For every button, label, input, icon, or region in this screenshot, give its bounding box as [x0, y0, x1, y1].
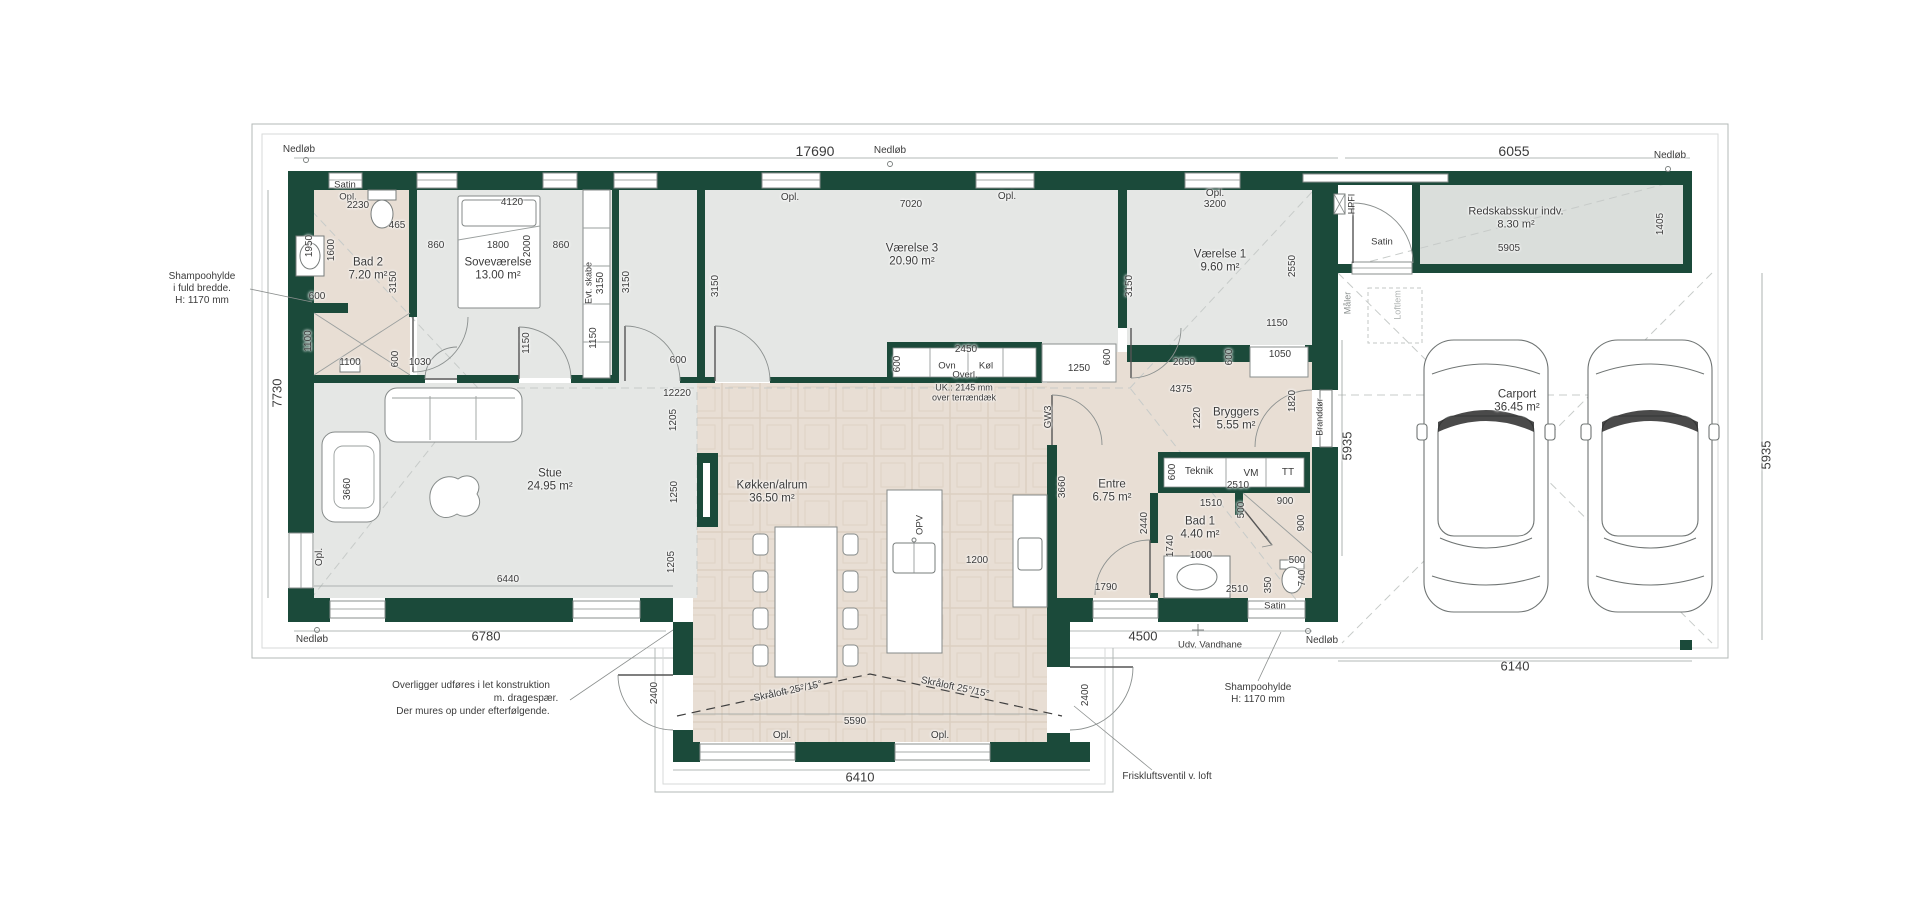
plan-label: 36.50 m²: [749, 493, 794, 505]
floor-plan-page: Nedløb17690Nedløb6055NedløbSatinOpl.2230…: [0, 0, 1920, 920]
plan-label: Udv. Vandhane: [1178, 640, 1242, 650]
plan-label: Nedløb: [1654, 151, 1686, 161]
plan-label: 860: [553, 241, 570, 251]
plan-label: 13.00 m²: [475, 270, 520, 282]
plan-label: UK.: 2145 mm: [935, 384, 993, 393]
plan-label: 3150: [389, 271, 399, 293]
plan-label: 600: [670, 356, 687, 366]
plan-label: 1220: [1193, 407, 1203, 429]
plan-label: 1600: [327, 239, 337, 261]
plan-label: 6055: [1498, 144, 1529, 158]
plan-label: Branddør: [1316, 398, 1325, 436]
plan-label: OPV: [915, 515, 925, 535]
plan-label: Overl.: [952, 370, 977, 380]
plan-label: 740: [1298, 570, 1308, 587]
plan-label: Opl.: [998, 192, 1016, 202]
plan-label: 8.30 m²: [1497, 220, 1534, 231]
plan-label: 2450: [955, 345, 977, 355]
carport-fascia-opening: [1303, 174, 1448, 182]
door: [1353, 203, 1413, 263]
plan-label: 4500: [1129, 630, 1158, 643]
door: [618, 675, 673, 730]
plan-label: over terrændæk: [932, 394, 996, 403]
plan-label: Shampoohylde: [169, 272, 236, 282]
plan-label: 6410: [846, 771, 875, 784]
plan-label: 1250: [1068, 364, 1090, 374]
plan-label: Satin: [1264, 601, 1286, 611]
plan-label: 4120: [501, 198, 523, 208]
plan-label: 1100: [339, 358, 361, 368]
hpfi-box: [1334, 194, 1345, 214]
plan-label: Opl.: [931, 731, 949, 741]
plan-label: 1205: [669, 409, 679, 431]
plan-label: 3150: [596, 272, 606, 294]
plan-label: 7.20 m²: [349, 270, 388, 282]
car: [1581, 340, 1719, 612]
window: [417, 173, 457, 188]
car: [1417, 340, 1555, 612]
coffee-table: [430, 476, 480, 518]
plan-label: 600: [893, 356, 903, 373]
plan-label: 20.90 m²: [889, 256, 934, 268]
plan-label: Carport: [1498, 389, 1536, 401]
plan-label: Shampoohylde: [1225, 683, 1292, 693]
plan-label: 465: [389, 221, 406, 231]
plan-label: Måler: [1344, 292, 1353, 315]
plan-label: 5905: [1498, 244, 1520, 254]
plan-label: Bryggers: [1213, 407, 1259, 419]
plan-label: Opl.: [1206, 189, 1224, 199]
plan-label: 1950: [305, 235, 315, 257]
carport-cars: [1417, 340, 1719, 612]
plan-label: 900: [1277, 497, 1294, 507]
window: [700, 744, 795, 760]
plan-label: Entre: [1098, 479, 1126, 491]
plan-label: 3660: [1058, 476, 1068, 498]
plan-label: Køl: [979, 361, 993, 371]
plan-label: H: 1170 mm: [1231, 695, 1285, 705]
plan-label: Satin: [334, 180, 356, 190]
plan-label: Overligger udføres i let konstruktion: [392, 681, 550, 691]
plan-label: i fuld bredde.: [173, 284, 231, 294]
plan-label: 2550: [1288, 255, 1298, 277]
window: [543, 173, 577, 188]
plan-label: 5935: [1341, 432, 1354, 461]
plan-label: 3150: [711, 275, 721, 297]
plan-label: 1820: [1288, 390, 1298, 412]
plan-label: Friskluftsventil v. loft: [1122, 772, 1211, 782]
window: [289, 533, 313, 588]
plan-label: 1150: [1266, 319, 1288, 329]
plan-label: 1250: [670, 481, 680, 503]
plan-label: 1030: [409, 358, 431, 368]
plan-label: Opl.: [781, 193, 799, 203]
plan-label: 1740: [1166, 535, 1176, 557]
chimney-slit: [703, 463, 710, 517]
plan-label: Nedløb: [874, 146, 906, 156]
plan-label: 1050: [1269, 350, 1291, 360]
window: [1352, 262, 1412, 274]
window: [762, 173, 820, 188]
plan-label: 2230: [347, 201, 369, 211]
window: [1185, 173, 1240, 188]
plan-label: 2050: [1173, 358, 1195, 368]
window: [573, 601, 640, 618]
plan-label: GW3: [1044, 406, 1054, 429]
plan-label: 5.55 m²: [1217, 420, 1256, 432]
window: [614, 173, 657, 188]
plan-label: m. dragespær.: [494, 694, 558, 704]
plan-label: Nedløb: [296, 635, 328, 645]
plan-label: 1100: [304, 330, 314, 352]
plan-label: HPFI: [1348, 194, 1357, 215]
floor-plan-drawing: [0, 0, 1920, 920]
window: [1093, 601, 1158, 618]
plan-label: TT: [1282, 468, 1294, 478]
plan-label: 1150: [589, 327, 599, 349]
plan-label: Nedløb: [1306, 636, 1338, 646]
plan-label: 2400: [650, 682, 660, 704]
plan-label: 1800: [487, 241, 509, 251]
plan-label: 1510: [1200, 499, 1222, 509]
bad1-sink: [1164, 556, 1230, 598]
plan-label: 3660: [343, 478, 353, 500]
plan-label: Der mures op under efterfølgende.: [396, 707, 549, 717]
plan-label: 1205: [667, 551, 677, 573]
plan-label: Loftlem: [1394, 290, 1403, 320]
plan-label: 2440: [1140, 512, 1150, 534]
window: [330, 601, 385, 618]
plan-label: 600: [391, 351, 401, 368]
plan-label: 4.40 m²: [1181, 529, 1220, 541]
plan-label: 600: [309, 292, 326, 302]
plan-label: VM: [1244, 469, 1259, 479]
plan-label: 860: [428, 241, 445, 251]
plan-label: 4375: [1170, 385, 1192, 395]
plan-label: 1150: [522, 332, 532, 354]
plan-label: 6780: [472, 630, 501, 643]
plan-label: 5935: [1760, 441, 1773, 470]
plan-label: 2400: [1081, 684, 1091, 706]
plan-label: 600: [1225, 349, 1235, 366]
plan-label: 3200: [1204, 200, 1226, 210]
plan-label: 1790: [1095, 583, 1117, 593]
plan-label: H: 1170 mm: [175, 296, 229, 306]
plan-label: 2510: [1226, 585, 1248, 595]
plan-label: 1405: [1656, 213, 1666, 235]
plan-label: 12220: [663, 389, 691, 399]
plan-label: 7020: [900, 200, 922, 210]
plan-label: Satin: [1371, 237, 1393, 247]
plan-label: 17690: [796, 144, 835, 158]
vandhane-symbol: [1192, 624, 1204, 636]
window: [976, 173, 1034, 188]
plan-label: 600: [1168, 464, 1178, 481]
plan-label: 36.45 m²: [1494, 402, 1539, 414]
plan-label: Evt. skabe: [585, 262, 594, 304]
plan-label: Stue: [538, 468, 562, 480]
plan-label: Bad 2: [353, 257, 383, 269]
plan-label: 9.60 m²: [1201, 262, 1240, 274]
plan-label: Værelse 1: [1194, 249, 1246, 261]
plan-label: 6440: [497, 575, 519, 585]
plan-label: 500: [1237, 502, 1247, 519]
plan-label: 350: [1264, 577, 1274, 594]
plan-label: Opl.: [773, 731, 791, 741]
plan-label: Redskabsskur indv.: [1468, 207, 1563, 218]
plan-label: 3150: [1125, 275, 1135, 297]
plan-label: 6140: [1501, 660, 1530, 673]
plan-label: 2510: [1227, 481, 1249, 491]
plan-label: 1000: [1190, 551, 1212, 561]
plan-label: 5590: [844, 717, 866, 727]
plan-label: Soveværelse: [464, 257, 531, 269]
plan-label: Opl.: [315, 548, 325, 566]
plan-label: 1200: [966, 556, 988, 566]
plan-label: 2000: [523, 235, 533, 257]
plan-label: 600: [1103, 349, 1113, 366]
plan-label: Køkken/alrum: [737, 480, 808, 492]
plan-label: Nedløb: [283, 145, 315, 155]
plan-label: 7730: [271, 379, 284, 408]
sofa: [385, 388, 522, 442]
plan-label: Værelse 3: [886, 243, 938, 255]
kitchen-counter: [1013, 495, 1047, 607]
plan-label: 900: [1297, 515, 1307, 532]
plan-label: 24.95 m²: [527, 481, 572, 493]
plan-label: Bad 1: [1185, 516, 1215, 528]
plan-label: 6.75 m²: [1093, 492, 1132, 504]
plan-label: Teknik: [1185, 467, 1213, 477]
window: [895, 744, 990, 760]
plan-label: 500: [1289, 556, 1306, 566]
plan-label: 3150: [622, 271, 632, 293]
